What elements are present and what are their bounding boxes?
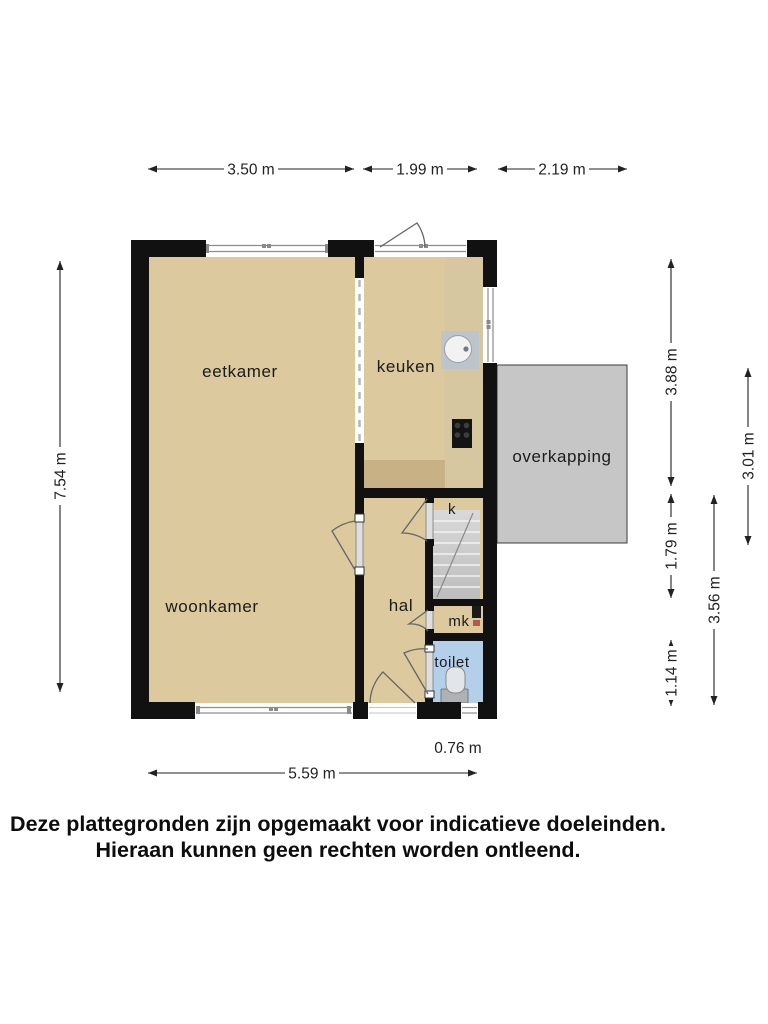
window-top (206, 241, 328, 256)
wall-bottom-right (417, 702, 461, 719)
arrowhead (498, 166, 507, 173)
dim-label: 5.59 m (288, 766, 335, 783)
arrowhead (468, 166, 477, 173)
stairs (433, 510, 480, 599)
dim-bottom: 5.59 m (148, 765, 477, 783)
keuken-label: keuken (377, 357, 435, 376)
dim-label: 3.01 m (741, 432, 758, 479)
dim-left: 7.54 m (52, 261, 70, 692)
burner (464, 432, 470, 438)
dim-top-2: 1.99 m (363, 161, 477, 179)
dim-right-356: 3.56 m (706, 495, 724, 705)
door-band-top (374, 241, 467, 256)
dim-label: 1.79 m (664, 522, 681, 569)
dim-label: 3.50 m (227, 162, 274, 179)
wall-bottom-corner (478, 702, 497, 719)
sink (441, 331, 479, 369)
arrowhead (57, 683, 64, 692)
fuse-box-switch (473, 620, 480, 626)
wall-bottom-mid (353, 702, 368, 719)
arrowhead (668, 259, 675, 268)
arrowhead (668, 589, 675, 598)
stove (452, 419, 472, 448)
dim-label-076: 0.76 m (434, 740, 481, 757)
mk-label: mk (448, 613, 469, 630)
arrowhead (711, 495, 718, 504)
arrowhead (745, 368, 752, 377)
arrowhead (148, 166, 157, 173)
arrowhead (668, 477, 675, 486)
dim-label: 7.54 m (53, 452, 70, 499)
arrowhead (468, 770, 477, 777)
k-label: k (448, 501, 456, 518)
dim-label: 2.19 m (538, 162, 585, 179)
wall-right-lower (483, 363, 497, 719)
sink-drain (463, 346, 468, 351)
burner (455, 432, 461, 438)
mk-door-leaf (426, 610, 433, 630)
disclaimer: Deze plattegronden zijn opgemaakt voor i… (0, 811, 676, 863)
arrowhead (711, 696, 718, 705)
stove-base (452, 419, 472, 448)
door-cap (425, 605, 434, 611)
wall-top-mid (328, 240, 374, 257)
window-toilet (461, 703, 478, 718)
door-cap (355, 514, 364, 522)
door-cap (355, 567, 364, 575)
opening-gap (355, 278, 364, 443)
floorplan-page: 3.50 m 1.99 m 2.19 m 7.54 m (0, 0, 768, 1024)
floorplan-drawing: 3.50 m 1.99 m 2.19 m 7.54 m (0, 0, 768, 1024)
wall-inner-vertical-bottom (355, 572, 364, 703)
wall-inner-vertical-mid (355, 443, 364, 518)
wall-bottom-left (131, 702, 195, 719)
eetkamer-label: eetkamer (202, 362, 278, 381)
woonkamer-label: woonkamer (164, 597, 258, 616)
dim-label: 3.56 m (707, 576, 724, 623)
dim-right-388: 3.88 m (663, 259, 681, 486)
arrowhead (148, 770, 157, 777)
arrowhead (363, 166, 372, 173)
arrowhead (745, 536, 752, 545)
burner (455, 423, 461, 429)
disclaimer-line1: Deze plattegronden zijn opgemaakt voor i… (0, 811, 676, 837)
wall-k-mk (425, 599, 483, 606)
fuse-box (472, 603, 481, 626)
arrowhead (668, 494, 675, 503)
dim-right-301: 3.01 m (740, 368, 758, 545)
overkapping-label: overkapping (512, 447, 611, 466)
counter-right-strip (445, 257, 483, 488)
dim-label: 3.88 m (664, 348, 681, 395)
arrowhead (57, 261, 64, 270)
toilet-door-leaf (426, 651, 433, 693)
toilet-label: toilet (434, 654, 470, 671)
hal-label: hal (389, 596, 414, 615)
window-right (484, 287, 497, 363)
wall-hal-k (425, 544, 433, 608)
dim-right-114: 1.14 m (663, 640, 681, 706)
woonkamer-eetkamer-floor (149, 257, 355, 703)
arrowhead (345, 166, 354, 173)
dim-label: 1.99 m (396, 162, 443, 179)
arrowhead (618, 166, 627, 173)
opening-eetkamer-keuken (355, 278, 364, 443)
burner (464, 423, 470, 429)
k-door-leaf (426, 501, 433, 541)
wall-right-upper (483, 240, 497, 287)
window-bottom (195, 703, 353, 718)
dim-right-179: 1.79 m (663, 494, 681, 598)
front-door-opening (368, 703, 417, 718)
disclaimer-line2: Hieraan kunnen geen rechten worden ontle… (0, 837, 676, 863)
dim-top-3: 2.19 m (498, 161, 627, 179)
wall-left (131, 240, 149, 719)
wall-inner-vertical-top (355, 257, 364, 278)
counter-bottom-strip (364, 460, 445, 488)
dim-top-1: 3.50 m (148, 161, 354, 179)
woonkamer-door-leaf (356, 521, 363, 569)
dim-label: 1.14 m (664, 649, 681, 696)
